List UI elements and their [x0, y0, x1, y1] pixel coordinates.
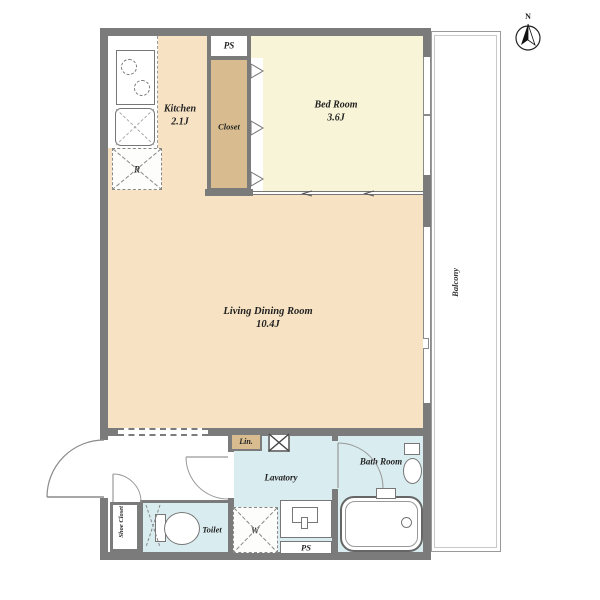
entrance-door-arc	[47, 440, 104, 497]
refrigerator-label: R	[134, 164, 140, 175]
bath-basin	[403, 458, 422, 484]
compass-circle	[516, 26, 540, 50]
wall-left-lower	[100, 498, 108, 560]
living-size: 10.4J	[223, 318, 312, 331]
wall-top	[100, 28, 431, 36]
bedroom-size: 3.6J	[314, 112, 357, 125]
shoe-closet	[110, 502, 140, 552]
entrance-opening	[100, 440, 108, 498]
living-label: Living Dining Room 10.4J	[223, 305, 312, 331]
wall-bottom	[100, 552, 431, 560]
kitchen-sink	[115, 108, 155, 146]
ps-top-label: PS	[224, 40, 235, 51]
shoe-closet-label: Shoe Closet	[118, 506, 125, 538]
living-window-handle	[422, 338, 429, 349]
bath-counter	[404, 443, 420, 455]
wall-ldk-bottom-right	[234, 428, 431, 436]
pipe-hatch-box	[268, 433, 290, 452]
living-name: Living Dining Room	[223, 305, 312, 318]
vanity-faucet	[301, 517, 308, 529]
floor-plan: Balcony R PS Closet Lavatory	[0, 0, 600, 600]
balcony-outline	[431, 31, 501, 552]
hall-sliding-door	[118, 428, 208, 436]
bathroom-label: Bath Room	[360, 456, 402, 467]
wall-left-upper	[100, 28, 108, 440]
wall-right-b	[423, 175, 431, 227]
washer-label: W	[251, 525, 259, 536]
lavatory-door-opening	[228, 452, 234, 498]
linen-label: Lin.	[239, 437, 253, 447]
living-window	[423, 227, 431, 403]
kitchen-name: Kitchen	[164, 104, 196, 117]
toilet-bowl	[164, 512, 200, 545]
toilet-label: Toilet	[202, 525, 222, 536]
bedroom-label: Bed Room 3.6J	[314, 100, 357, 125]
wall-right-a	[423, 28, 431, 57]
closet-label: Closet	[218, 122, 240, 133]
stove-burner-1	[121, 59, 137, 75]
stove-burner-2	[134, 80, 150, 96]
bedroom-window	[423, 57, 431, 175]
bedroom-name: Bed Room	[314, 100, 357, 113]
bath-step	[376, 488, 396, 499]
stove	[116, 50, 155, 105]
compass-north-label: N	[525, 12, 531, 22]
compass-needle-light	[528, 24, 535, 45]
wall-ldk-bottom-left	[100, 428, 118, 436]
bedroom-sliding-partition	[253, 191, 423, 195]
kitchen-label: Kitchen 2.1J	[164, 104, 196, 129]
ps-bottom-label: PS	[301, 543, 311, 554]
compass-needle-dark	[521, 24, 528, 45]
kitchen-size: 2.1J	[164, 116, 196, 129]
balcony-label: Balcony	[450, 268, 460, 297]
bath-door-opening	[332, 441, 338, 489]
wall-below-closet	[205, 189, 253, 196]
wall-right-c	[423, 403, 431, 560]
balcony-inner-line	[434, 35, 497, 548]
bedroom-window-mullion	[423, 114, 431, 116]
bathtub-drain	[401, 517, 412, 528]
lavatory-label: Lavatory	[265, 472, 298, 483]
closet-door-strip	[251, 58, 263, 192]
